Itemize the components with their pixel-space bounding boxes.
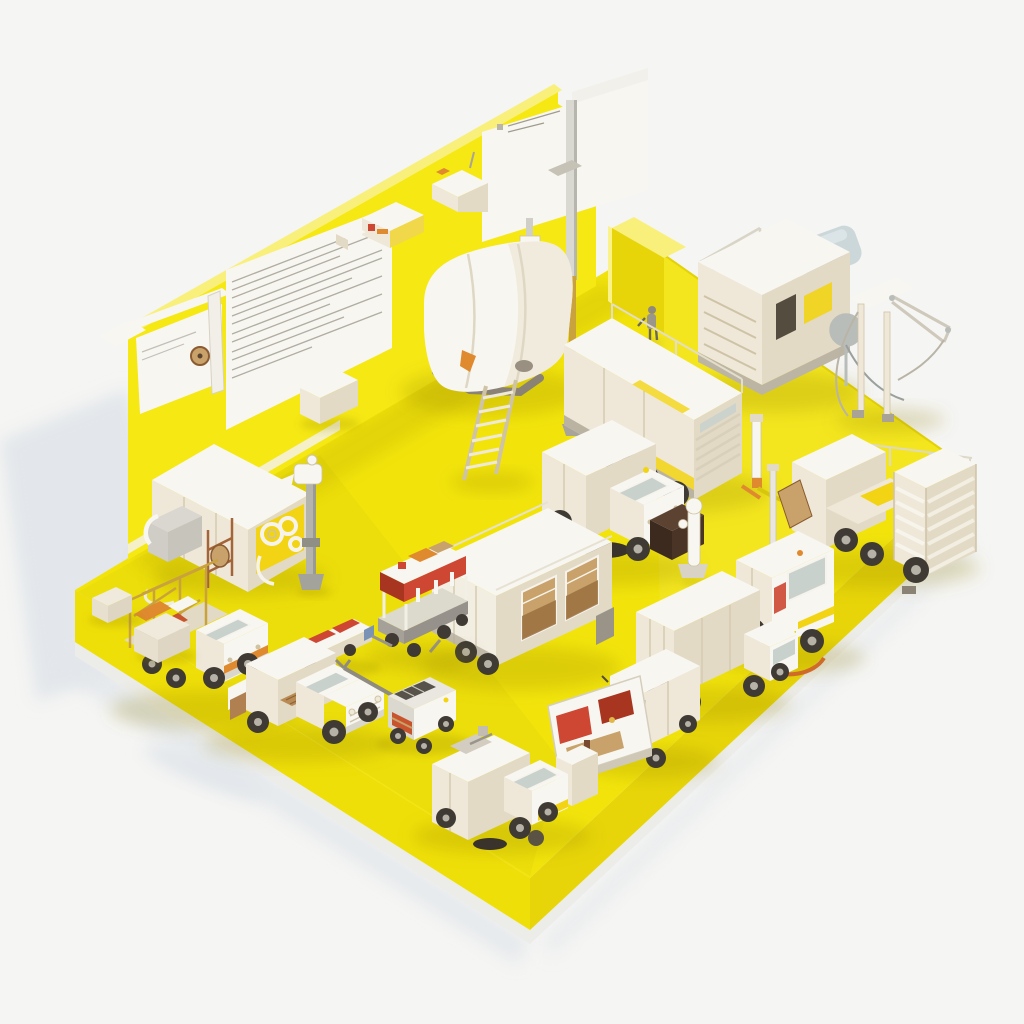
- stack-pipe: [752, 420, 761, 478]
- shadow: [203, 726, 393, 762]
- spool: [211, 545, 229, 567]
- dome: [686, 498, 702, 514]
- figure-head: [648, 306, 656, 314]
- pulley-a: [889, 295, 895, 301]
- headlight-b: [375, 696, 381, 702]
- beacon: [797, 550, 803, 556]
- door-edge-highlight: [608, 226, 612, 304]
- beacon: [643, 467, 649, 473]
- post-b: [884, 312, 890, 418]
- art-gold-dot: [609, 717, 615, 723]
- tap-head: [294, 464, 322, 484]
- pole-shade: [574, 100, 577, 280]
- bucket: [515, 360, 533, 372]
- headlight-a: [349, 709, 355, 715]
- foot-a: [852, 410, 864, 418]
- hose-elbow: [752, 478, 762, 488]
- round-brush: [528, 830, 544, 846]
- vent-pipe: [526, 218, 533, 238]
- hose-reel: [831, 315, 861, 345]
- valve-wheel: [307, 455, 317, 465]
- foot-b: [882, 414, 894, 422]
- stack-cap: [750, 414, 763, 422]
- gauge-center: [198, 354, 203, 359]
- sign-logo: [497, 124, 503, 130]
- lamp-dot: [444, 698, 449, 703]
- headlight-a: [228, 658, 233, 663]
- gutter-brush: [473, 838, 507, 850]
- side-cap: [679, 520, 688, 529]
- chock: [902, 586, 916, 594]
- collar: [302, 538, 320, 547]
- post: [688, 508, 700, 566]
- cargo-red: [398, 562, 406, 569]
- diorama-canvas: Isometric 3D miniature diorama: white an…: [0, 0, 1024, 1024]
- base: [298, 574, 324, 590]
- shadow: [450, 472, 534, 492]
- red-accent: [368, 224, 375, 231]
- orange-accent: [377, 229, 388, 234]
- post-a: [858, 304, 864, 416]
- pulley-b: [945, 327, 951, 333]
- mast-tip: [767, 464, 779, 471]
- headlight-b: [256, 645, 261, 650]
- isometric-diorama: Isometric 3D miniature diorama: white an…: [0, 0, 1024, 1024]
